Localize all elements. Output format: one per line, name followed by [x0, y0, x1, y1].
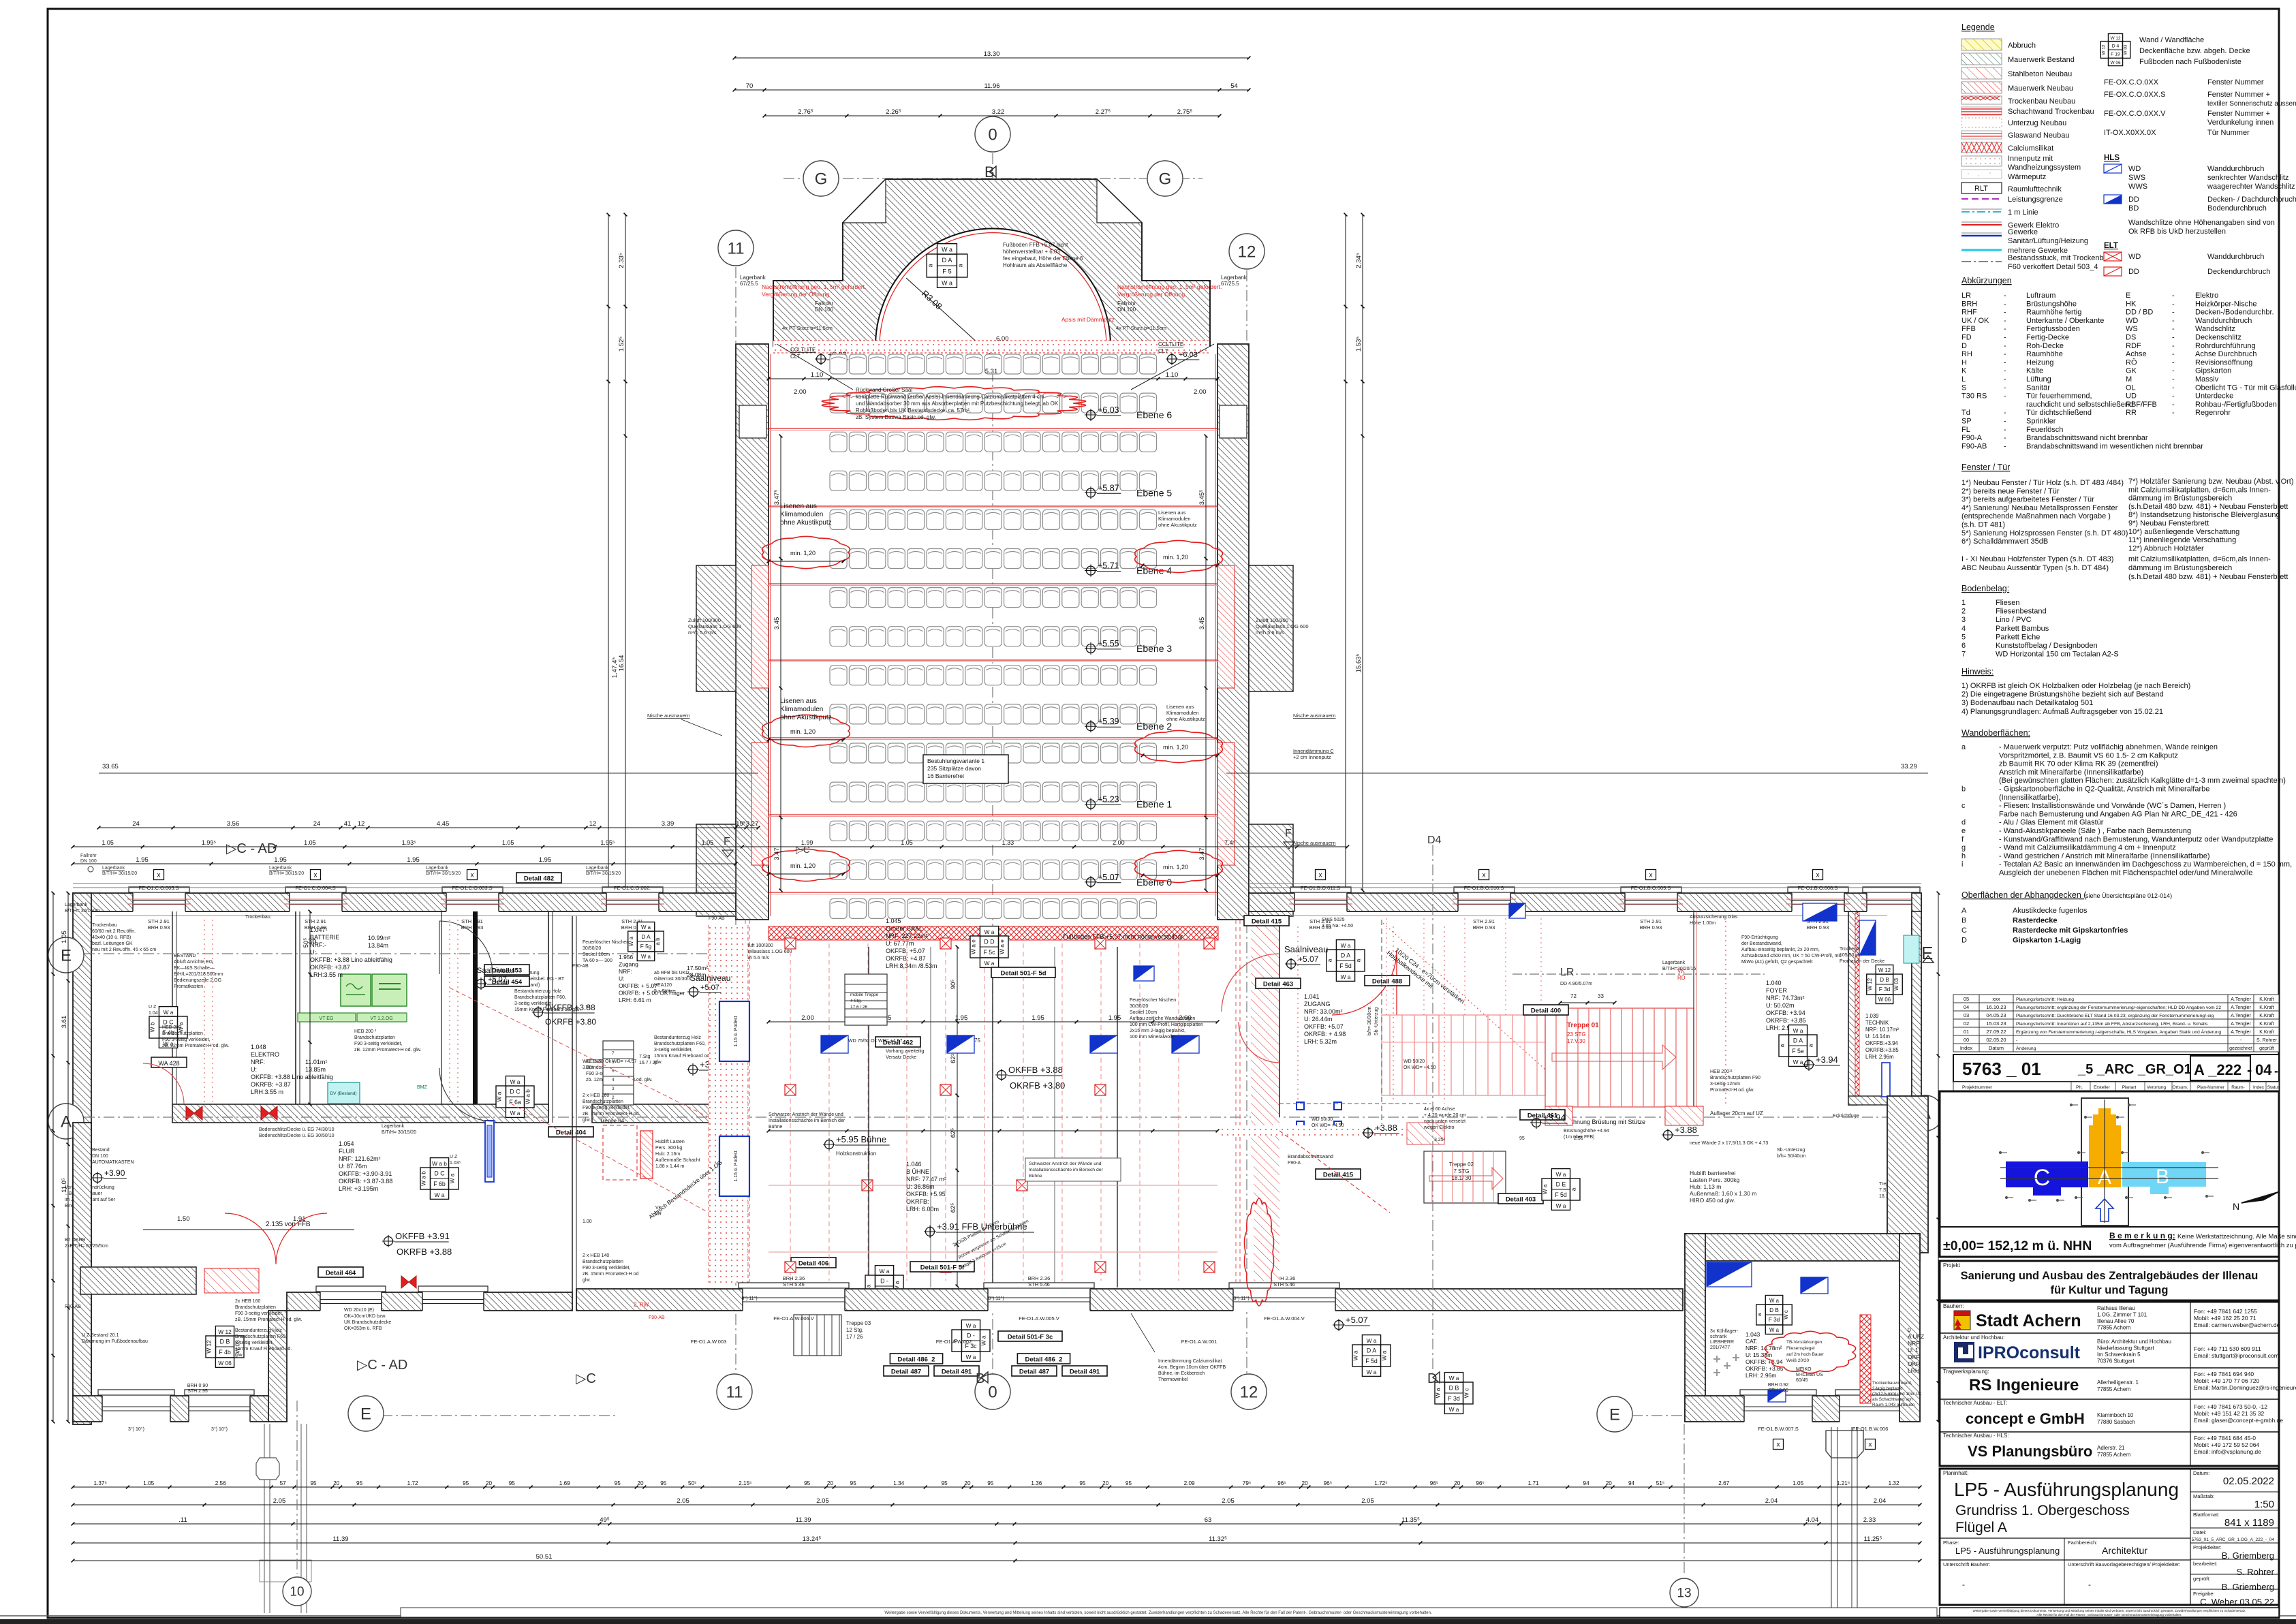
svg-text:OKFFB: +3.90-3.91: OKFFB: +3.90-3.91 [339, 1170, 392, 1177]
svg-text:1.05: 1.05 [702, 839, 714, 846]
svg-text:F 5d: F 5d [1339, 963, 1352, 969]
svg-text:Promatkasten: Promatkasten [174, 984, 203, 989]
svg-text:+5.55: +5.55 [1098, 639, 1119, 649]
svg-text:LRH:8,34m /8.53m: LRH:8,34m /8.53m [886, 963, 937, 969]
svg-text:67/25.5: 67/25.5 [740, 281, 758, 287]
svg-text:Nachströmöffnung geo. 1, 5m² g: Nachströmöffnung geo. 1, 5m² gefordert. [762, 283, 866, 290]
svg-text:FE-O1.A.W.002: FE-O1.A.W.002 [936, 1339, 972, 1345]
svg-text:D A: D A [641, 934, 651, 940]
svg-text:+3.90: +3.90 [104, 1168, 125, 1178]
svg-text:W a: W a [966, 1354, 976, 1360]
svg-text:W a b: W a b [420, 1171, 427, 1186]
svg-text:BRH 0.93: BRH 0.93 [1640, 924, 1662, 931]
svg-text:Bestandunterzug Holz: Bestandunterzug Holz [514, 989, 561, 994]
svg-text:1.72⁵: 1.72⁵ [1374, 1480, 1387, 1486]
svg-text:F 5c: F 5c [983, 949, 995, 956]
svg-text:FE-O1.A.W.005.V: FE-O1.A.W.005.V [1019, 1315, 1059, 1322]
svg-text:-: - [2004, 375, 2006, 384]
svg-text:20: 20 [827, 1480, 834, 1486]
svg-text:95: 95 [804, 1480, 811, 1486]
svg-text:77880 Sasbach: 77880 Sasbach [2097, 1419, 2135, 1425]
svg-text:1.33: 1.33 [1002, 839, 1014, 846]
svg-text:Treppe 04: Treppe 04 [600, 1118, 625, 1124]
svg-text:FE-O1.C.O.002.: FE-O1.C.O.002. [614, 885, 651, 891]
svg-text:FE-O1.B.O.009.S: FE-O1.B.O.009.S [1631, 885, 1671, 891]
svg-text:6: 6 [1961, 642, 1966, 650]
svg-text:ZUGANG: ZUGANG [1304, 1001, 1331, 1008]
svg-text:1: 1 [1961, 599, 1966, 607]
svg-text:Thermowinkel: Thermowinkel [1158, 1377, 1188, 1382]
svg-text:W 12: W 12 [218, 1328, 232, 1335]
svg-text:Nische ausmauern: Nische ausmauern [647, 713, 690, 719]
svg-text:Abluft Anrichte EG: Abluft Anrichte EG [174, 960, 213, 965]
svg-text:Email: glaser@concept-e-gmbh.: Email: glaser@concept-e-gmbh.de [2194, 1417, 2283, 1424]
svg-text:ohne Akustikputz: ohne Akustikputz [1158, 522, 1197, 528]
svg-text:2-lagig beplankt: 2-lagig beplankt [1872, 1386, 1903, 1391]
svg-text:W 12: W 12 [1867, 978, 1873, 990]
svg-text:Sanitär/Lüftung/Heizung: Sanitär/Lüftung/Heizung [2008, 237, 2088, 245]
svg-text:3°) 10°): 3°) 10°) [128, 1426, 144, 1432]
svg-text:Klimamodulen: Klimamodulen [1166, 710, 1199, 716]
svg-text:77855 Achern: 77855 Achern [2097, 1386, 2130, 1392]
svg-text:Blattformat:: Blattformat: [2193, 1512, 2219, 1518]
svg-text:a: a [1354, 958, 1361, 962]
svg-text:CAT.: CAT. [1746, 1338, 1758, 1345]
svg-text:1.047¹: 1.047¹ [310, 926, 328, 933]
svg-text:Hublift Lasten: Hublift Lasten [655, 1140, 685, 1144]
svg-text:D 4: D 4 [2112, 44, 2120, 49]
svg-text:03: 03 [1964, 1012, 1969, 1018]
svg-text:Oberlicht TG - Tür mit Glasfül: Oberlicht TG - Tür mit Glasfüllung [2195, 384, 2296, 392]
svg-text:U:: U: [251, 1066, 257, 1073]
svg-text:Rückwand Großer Saal: Rückwand Großer Saal [856, 387, 912, 393]
svg-text:Klammboch 10: Klammboch 10 [2097, 1412, 2134, 1418]
svg-text:Detail 487: Detail 487 [891, 1369, 921, 1376]
svg-text:Detail 415: Detail 415 [1252, 918, 1282, 926]
svg-text:1.95: 1.95 [1031, 1014, 1044, 1022]
svg-text:RD: RD [1677, 975, 1686, 981]
svg-text:Ebene 5: Ebene 5 [1136, 487, 1172, 498]
svg-text:Maßstab:: Maßstab: [2193, 1493, 2214, 1499]
svg-text:OKRFB: +3.87: OKRFB: +3.87 [251, 1081, 291, 1088]
svg-text:2.04: 2.04 [1765, 1497, 1778, 1505]
svg-text:Feuerlöscher Nischen: Feuerlöscher Nischen [1130, 998, 1176, 1003]
svg-text:neu mit 2 Rev.öffn. 45 x 65 cm: neu mit 2 Rev.öffn. 45 x 65 cm [92, 948, 156, 952]
svg-text:Architektur und Hochbau:: Architektur und Hochbau: [1943, 1334, 2004, 1341]
svg-text:Treppe 03: Treppe 03 [846, 1320, 871, 1326]
svg-text:Fon: +49 711 530 609 911: Fon: +49 711 530 609 911 [2194, 1345, 2261, 1352]
svg-text:S: S [1961, 384, 1966, 392]
svg-text:+5.07: +5.07 [1298, 954, 1319, 964]
svg-text:1.05: 1.05 [61, 931, 68, 943]
svg-text:90⁵: 90⁵ [950, 980, 957, 990]
svg-text:NRF: 227.22m²: NRF: 227.22m² [886, 933, 928, 939]
svg-text:AUTOMATKASTEN: AUTOMATKASTEN [92, 1160, 134, 1165]
svg-text:D B: D B [1769, 1307, 1779, 1313]
svg-text:FE-OX.C.O.0XX.S: FE-OX.C.O.0XX.S [2104, 91, 2165, 99]
svg-text:-: - [2004, 334, 2006, 342]
svg-text:siehe Übersichtspläne 012-014): siehe Übersichtspläne 012-014) [2085, 892, 2172, 899]
svg-text:20: 20 [333, 1480, 340, 1486]
svg-text:Planart: Planart [2122, 1085, 2137, 1090]
svg-text:Fenster Nummer: Fenster Nummer [2207, 78, 2264, 87]
svg-text:-: - [2172, 384, 2175, 392]
svg-text:33: 33 [1598, 993, 1604, 999]
svg-text:W a: W a [1352, 1350, 1359, 1360]
svg-text:Sanitär: Sanitär [2026, 384, 2050, 392]
svg-text:Brandschutzplatten: Brandschutzplatten [235, 1305, 276, 1310]
svg-text:-: - [2004, 384, 2006, 392]
svg-text:OKRFB: +3.85: OKRFB: +3.85 [1766, 1017, 1806, 1024]
svg-text:Brandschutzplatten: Brandschutzplatten [354, 1035, 395, 1040]
svg-text:Auflager 20cm auf UZ: Auflager 20cm auf UZ [1710, 1110, 1763, 1116]
svg-text:1.47.4⁵: 1.47.4⁵ [611, 657, 619, 678]
svg-text:D B: D B [220, 1339, 230, 1345]
svg-text:-: - [2172, 334, 2175, 342]
svg-text:WD 50/30: WD 50/30 [1312, 1117, 1333, 1122]
svg-text:2: 2 [1961, 608, 1966, 616]
svg-text:13.30: 13.30 [984, 50, 1000, 58]
svg-text:W 06: W 06 [218, 1360, 232, 1367]
svg-text:Fon: +49 7841 684 45-0: Fon: +49 7841 684 45-0 [2194, 1435, 2256, 1441]
svg-text:MiWo (A1) gefüllt, Q2 gespacht: MiWo (A1) gefüllt, Q2 gespachtelt [1741, 960, 1813, 965]
svg-text:Index: Index [2253, 1085, 2265, 1090]
svg-text:BESTAND: BESTAND [174, 954, 196, 958]
svg-text:Bodenschlitz/Decke ü. EG 30/50: Bodenschlitz/Decke ü. EG 30/50/10 [259, 1134, 335, 1138]
svg-text:0: 0 [1908, 1326, 1911, 1333]
svg-text:CCLTLITE: CCLTLITE [790, 347, 816, 353]
svg-text:mobile Treppe: mobile Treppe [850, 993, 879, 997]
svg-text:4.04: 4.04 [1806, 1516, 1819, 1524]
svg-text:D A: D A [1793, 1037, 1803, 1044]
svg-text:HK: HK [2126, 300, 2137, 308]
svg-text:Verdunkelung innen: Verdunkelung innen [2207, 119, 2274, 127]
svg-text:-: - [2172, 375, 2175, 384]
svg-text:79⁵: 79⁵ [1243, 1480, 1252, 1486]
svg-text:Hublift barrierefrei: Hublift barrierefrei [1690, 1170, 1736, 1176]
svg-text:B/T/H= 30/15/20: B/T/H= 30/15/20 [382, 1130, 416, 1135]
svg-text:Gewerke: Gewerke [2008, 228, 2038, 236]
svg-text:FE-O1.B.O.008.S: FE-O1.B.O.008.S [1798, 885, 1838, 891]
svg-text:4*) Sanierung/ Neubau Metallsp: 4*) Sanierung/ Neubau Metallsprossen Fen… [1961, 504, 2118, 512]
svg-text:FL: FL [1961, 426, 1970, 434]
svg-text:F90 3-seitig verkleidet,: F90 3-seitig verkleidet, [235, 1311, 283, 1316]
svg-text:2.05: 2.05 [1361, 1497, 1374, 1505]
svg-text:12*) Abbruch Holztäfer: 12*) Abbruch Holztäfer [2128, 544, 2204, 552]
svg-text:Rathaus Illenau: Rathaus Illenau [2097, 1305, 2135, 1311]
svg-text:+ 4.20 wurde 20 cm: + 4.20 wurde 20 cm [1424, 1113, 1466, 1118]
svg-text:D B: D B [1880, 977, 1889, 983]
svg-text:1.05: 1.05 [143, 1480, 154, 1486]
svg-text:W a: W a [1367, 1369, 1377, 1375]
svg-text:F 6a: F 6a [509, 1099, 521, 1106]
svg-text:Bühne, im Eckbereich: Bühne, im Eckbereich [1158, 1371, 1205, 1376]
svg-text:Bestandsstuck, mit Trockenbau: Bestandsstuck, mit Trockenbau [2008, 254, 2112, 262]
svg-text:-: - [2004, 409, 2006, 417]
svg-text:Lüftung: Lüftung [2026, 375, 2051, 384]
svg-text:OKR: OKR [1908, 1360, 1920, 1367]
svg-text:33.65: 33.65 [102, 763, 119, 770]
svg-text:Status: Status [2267, 1085, 2280, 1090]
svg-text:11*) innenliegende Verschattun: 11*) innenliegende Verschattung [2128, 536, 2236, 544]
svg-text:g: g [1961, 844, 1966, 852]
svg-text:Index: Index [1960, 1045, 1973, 1051]
svg-text:Innendämmung C: Innendämmung C [1293, 748, 1334, 754]
svg-text:B/T/H= 30/15/20: B/T/H= 30/15/20 [426, 871, 461, 876]
svg-text:60/45: 60/45 [1796, 1378, 1808, 1383]
svg-text:11.32⁵: 11.32⁵ [1209, 1535, 1227, 1543]
svg-text:-: - [2004, 426, 2006, 434]
svg-text:+5.07: +5.07 [700, 984, 719, 992]
svg-text:E: E [1609, 1405, 1620, 1424]
svg-text:841 x 1189: 841 x 1189 [2224, 1517, 2274, 1529]
svg-text:LP5 - Ausführungsplanung: LP5 - Ausführungsplanung [1955, 1546, 2060, 1556]
svg-text:95: 95 [850, 1480, 857, 1486]
svg-text:STH 2.91: STH 2.91 [1640, 918, 1662, 924]
svg-text:Brüstungshöhe: Brüstungshöhe [2026, 300, 2077, 308]
svg-text:1.03⁵: 1.03⁵ [450, 1161, 461, 1166]
svg-text:4) Planungsgrundlagen: Aufmaß: 4) Planungsgrundlagen: Aufmaß Auftragsge… [1961, 708, 2163, 716]
svg-text:Trockenbau: Trockenbau [92, 923, 117, 928]
svg-text:- Wand gestrichen / Anstrich m: - Wand gestrichen / Anstrich mit Mineral… [1999, 852, 2210, 860]
svg-text:Luftraum: Luftraum [2026, 292, 2055, 300]
svg-text:2.56: 2.56 [1574, 1136, 1583, 1141]
svg-text:1.10: 1.10 [811, 371, 824, 379]
svg-text:TECHNIK: TECHNIK [1865, 1020, 1889, 1026]
svg-text:VT 1.2.OG: VT 1.2.OG [370, 1016, 392, 1021]
svg-text:A: A [1961, 907, 1967, 915]
svg-text:Brandschutzplatten: Brandschutzplatten [583, 1260, 623, 1264]
svg-text:W a: W a [1793, 1059, 1803, 1065]
svg-text:Bestandunterzug Holz: Bestandunterzug Holz [654, 1035, 701, 1040]
svg-text:10: 10 [290, 1585, 304, 1599]
svg-text:BRH 0.90: BRH 0.90 [187, 1384, 208, 1388]
svg-text:A.Tengler: A.Tengler [2231, 1030, 2251, 1035]
svg-text:1.36: 1.36 [1031, 1480, 1042, 1486]
svg-text:LRH:: LRH: [1908, 1367, 1921, 1374]
svg-text:x: x [471, 872, 474, 879]
svg-text:Absturzsicherung Glas: Absturzsicherung Glas [1690, 915, 1738, 920]
svg-text:1.50: 1.50 [177, 1215, 190, 1223]
svg-text:LRH:3.55 m: LRH:3.55 m [310, 971, 343, 978]
svg-text:16.54: 16.54 [618, 655, 625, 672]
svg-text:Kälte: Kälte [2026, 367, 2043, 375]
svg-text:HEB 200: HEB 200 [162, 1025, 181, 1030]
svg-text:STH 2.91: STH 2.91 [148, 918, 170, 924]
svg-text:Parkett Eiche: Parkett Eiche [1996, 633, 2040, 641]
svg-text:Rasterdecke mit Gipskartonfrie: Rasterdecke mit Gipskartonfries [2013, 926, 2128, 935]
svg-text:Niederlassung Stuttgart: Niederlassung Stuttgart [2097, 1345, 2154, 1352]
svg-text:LR: LR [655, 1212, 662, 1217]
svg-text:zB. 15mm Promatect-H od. glw.: zB. 15mm Promatect-H od. glw. [235, 1317, 302, 1322]
svg-text:1.048: 1.048 [251, 1044, 266, 1050]
svg-text:Parkett Bambus: Parkett Bambus [1996, 625, 2049, 633]
svg-text:2.15⁵: 2.15⁵ [739, 1480, 751, 1486]
svg-text:+3.94: +3.94 [1543, 1112, 1566, 1123]
svg-text:der Bestandswand,: der Bestandswand, [1741, 941, 1782, 946]
svg-text:11.01m¹: 11.01m¹ [305, 1059, 327, 1065]
svg-text:Mobil: +49 170 77 06 720: Mobil: +49 170 77 06 720 [2194, 1377, 2259, 1384]
svg-text:1.72: 1.72 [407, 1480, 418, 1486]
svg-text:5: 5 [612, 1069, 615, 1074]
svg-text:WD Horizontal 150 cm Tectalan: WD Horizontal 150 cm Tectalan A2-S [1996, 651, 2119, 659]
svg-text:7.4⁵: 7.4⁵ [1224, 839, 1236, 846]
svg-text:Alle Rechte für den Fall der P: Alle Rechte für den Fall der Patent-, Ge… [2037, 1613, 2182, 1617]
svg-text:1.95: 1.95 [407, 856, 420, 864]
svg-text:-: - [2004, 392, 2006, 401]
svg-text:63: 63 [1205, 1516, 1212, 1524]
svg-text:Klimamodulen: Klimamodulen [1158, 516, 1191, 522]
svg-text:(s.h. DT 481): (s.h. DT 481) [1961, 521, 2005, 529]
svg-text:Wandoberflächen:: Wandoberflächen: [1961, 728, 2030, 738]
svg-text:NRF:: NRF: [251, 1059, 265, 1065]
svg-text:DN 100: DN 100 [1117, 307, 1136, 313]
svg-text:Achse Durchbruch: Achse Durchbruch [2195, 350, 2257, 358]
svg-text:Wand / Wandfläche: Wand / Wandfläche [2139, 36, 2204, 44]
svg-text:FE-O1.B.O.010.S: FE-O1.B.O.010.S [1464, 885, 1504, 891]
svg-text:wegen Elektro: wegen Elektro [1423, 1125, 1454, 1130]
svg-text:7: 7 [1961, 651, 1966, 659]
svg-text:GK: GK [2126, 367, 2137, 375]
svg-text:-: - [2004, 367, 2006, 375]
svg-text:Abkürzungen: Abkürzungen [1961, 276, 2012, 285]
svg-text:Rasterdecke: Rasterdecke [2013, 917, 2057, 925]
svg-text:U Z: U Z [450, 1155, 458, 1159]
svg-text:Im Schwenkrain 5: Im Schwenkrain 5 [2097, 1352, 2141, 1358]
svg-text:Architektur: Architektur [2102, 1545, 2147, 1556]
svg-text:3.65 Na: +4.50: 3.65 Na: +4.50 [1322, 924, 1353, 928]
svg-text:B/T/H= 30/15/20: B/T/H= 30/15/20 [586, 871, 621, 876]
svg-text:Glaswand Neubau: Glaswand Neubau [2008, 131, 2070, 140]
svg-text:2.00: 2.00 [801, 1014, 814, 1022]
svg-text:7.Stg: 7.Stg [639, 1055, 650, 1059]
svg-text:11.35⁵: 11.35⁵ [1401, 1516, 1420, 1524]
svg-text:E: E [2126, 292, 2130, 300]
svg-text:HEB 200¹¹: HEB 200¹¹ [1710, 1069, 1733, 1074]
svg-text:Illenau Allee 70: Illenau Allee 70 [2097, 1318, 2135, 1324]
svg-text:Rohfußboden bis UK Bestandsdec: Rohfußboden bis UK Bestandsdecke, ca. 57… [856, 407, 971, 413]
svg-text:4.45: 4.45 [437, 820, 450, 828]
svg-text:W a b: W a b [524, 1089, 531, 1104]
svg-text:Kunststoffbelag / Designboden: Kunststoffbelag / Designboden [1996, 642, 2098, 650]
svg-text:RLT: RLT [1974, 185, 1988, 193]
svg-text:B: B [2156, 1166, 2169, 1188]
svg-text:K.Kraft: K.Kraft [2259, 1005, 2274, 1010]
svg-text:Trockenbauvorwand,: Trockenbauvorwand, [1872, 1381, 1912, 1386]
svg-text:zb Baumit RK 70 oder Klima RK: zb Baumit RK 70 oder Klima RK 39 (zement… [1999, 760, 2158, 768]
svg-text:Klimamodulen: Klimamodulen [780, 511, 823, 518]
svg-text:- Alu / Glas Element mit Glast: - Alu / Glas Element mit Glastür [1999, 819, 2104, 827]
svg-text:20: 20 [964, 1480, 971, 1486]
svg-text:1,88 x 1,44 m: 1,88 x 1,44 m [655, 1164, 685, 1169]
svg-text:Bodendurchbruch: Bodendurchbruch [2207, 204, 2267, 213]
svg-text:F90 3-seitig verkleidet,: F90 3-seitig verkleidet, [354, 1042, 402, 1046]
svg-text:1.05: 1.05 [502, 839, 514, 846]
svg-text:NRF: 10.17m²: NRF: 10.17m² [1865, 1027, 1899, 1033]
svg-text:Bestuhlungsvariante 1: Bestuhlungsvariante 1 [927, 758, 984, 764]
svg-text:95: 95 [987, 1480, 994, 1486]
svg-text:Grundriss 1. Obergeschoss: Grundriss 1. Obergeschoss [1955, 1503, 2130, 1518]
svg-text:1.039: 1.039 [1865, 1013, 1879, 1019]
svg-text:U: 36.86m: U: 36.86m [906, 1183, 935, 1190]
svg-text:62⁵: 62⁵ [950, 1203, 957, 1213]
svg-text:G: G [815, 170, 828, 188]
svg-text:Innenputz mit: Innenputz mit [2008, 155, 2053, 163]
svg-text:95: 95 [1126, 1480, 1132, 1486]
svg-text:glw.: glw. [235, 1353, 243, 1358]
svg-text:1.37⁵: 1.37⁵ [94, 1480, 107, 1486]
svg-text:2.26⁵: 2.26⁵ [886, 108, 901, 116]
svg-text:m³/h 5.6 m/s: m³/h 5.6 m/s [688, 629, 717, 636]
svg-text:02: 02 [1964, 1020, 1969, 1027]
svg-text:W a: W a [1793, 1027, 1803, 1034]
svg-text:N: N [2233, 1201, 2239, 1212]
svg-text:F90-A: F90-A [1288, 1161, 1301, 1166]
svg-text:Ebene 6: Ebene 6 [1136, 409, 1172, 420]
svg-text:0: 0 [988, 1383, 997, 1401]
svg-text:OK=10cmUKD bzw.: OK=10cmUKD bzw. [344, 1314, 386, 1319]
svg-text:-: - [2172, 317, 2175, 325]
svg-text:Schwarzer Anstrich der Wände u: Schwarzer Anstrich der Wände und [1029, 1161, 1102, 1166]
svg-text:FE-O1.A.W.001: FE-O1.A.W.001 [1181, 1339, 1217, 1345]
svg-text:OKFFB: +3.88 Lino ableitfähig: OKFFB: +3.88 Lino ableitfähig [251, 1074, 333, 1080]
svg-text:Sockel 10cm: Sockel 10cm [1130, 1010, 1157, 1015]
svg-text:OKRFB +3.80: OKRFB +3.80 [545, 1017, 596, 1027]
svg-text:Raumhöhe fertig: Raumhöhe fertig [2026, 309, 2081, 317]
svg-text:4: 4 [612, 1078, 615, 1082]
svg-text:Außenmaß: 1,60 x 1,30 m: Außenmaß: 1,60 x 1,30 m [1690, 1190, 1756, 1197]
svg-text:FE-O1.B.W.007.S: FE-O1.B.W.007.S [1758, 1426, 1799, 1432]
svg-text:gezeichnet: gezeichnet [2229, 1046, 2252, 1051]
svg-text:62¹: 62¹ [950, 1054, 957, 1063]
svg-text:UK / OK: UK / OK [1961, 317, 1989, 325]
svg-text:STH 2.95: STH 2.95 [187, 1389, 208, 1394]
svg-text:OKRFB: + 5.00 OKTräger: OKRFB: + 5.00 OKTräger [619, 990, 685, 997]
svg-text:Raumhöhe: Raumhöhe [2026, 350, 2063, 358]
svg-text:Fenster Nummer +: Fenster Nummer + [2207, 91, 2270, 99]
svg-text:A.Tengler: A.Tengler [2231, 997, 2251, 1002]
svg-text:1.52⁵: 1.52⁵ [618, 337, 625, 352]
svg-text:F 3d: F 3d [1879, 986, 1891, 993]
svg-text:zB. 15mm Promatect-H od.: zB. 15mm Promatect-H od. [583, 1112, 640, 1116]
svg-text:x: x [314, 872, 317, 879]
svg-text:B/T/H=30/20/15: B/T/H=30/20/15 [1662, 967, 1696, 971]
svg-text:Gipskarton: Gipskarton [2195, 367, 2231, 375]
svg-text:UK Brandschutzdecke: UK Brandschutzdecke [344, 1320, 391, 1325]
svg-text:Fallrohr: Fallrohr [80, 854, 97, 858]
svg-text:U: 26.44m: U: 26.44m [1304, 1016, 1333, 1022]
svg-text:FE-O1.B.O.011.S: FE-O1.B.O.011.S [1301, 885, 1340, 891]
svg-text:2) Die eingetragene Brüstungsh: 2) Die eingetragene Brüstungshöhe bezieh… [1961, 691, 2164, 699]
svg-text:Mobil: +49 162 25 20 71: Mobil: +49 162 25 20 71 [2194, 1315, 2256, 1322]
svg-text:-: - [2004, 342, 2006, 350]
svg-text:Promat an der Decke: Promat an der Decke [1840, 959, 1884, 964]
svg-text:Fenster Nummer +: Fenster Nummer + [2207, 110, 2270, 118]
svg-text:Detail 463: Detail 463 [1263, 981, 1293, 988]
svg-text:WD 75/50 Ok WD= +4.57: WD 75/50 Ok WD= +4.57 [583, 1059, 636, 1064]
svg-text:Lisenen aus: Lisenen aus [780, 698, 817, 705]
svg-text:95: 95 [615, 1480, 621, 1486]
svg-text:Detail 400: Detail 400 [1531, 1008, 1561, 1015]
svg-text:F90-A: F90-A [1961, 434, 1983, 442]
svg-text:Detail 406: Detail 406 [798, 1260, 828, 1268]
svg-text:95: 95 [1519, 1136, 1525, 1141]
svg-text:F: F [724, 836, 730, 847]
svg-text:Sb.-Unterzug: Sb.-Unterzug [1777, 1148, 1805, 1153]
svg-text:Aufbau einseitig beplankt, 2x: Aufbau einseitig beplankt, 2x 20 mm, [1741, 948, 1820, 952]
svg-text:höhenverstellbar + 6.03: höhenverstellbar + 6.03 [1003, 249, 1060, 255]
svg-text:A.Tengler: A.Tengler [2231, 1014, 2251, 1018]
